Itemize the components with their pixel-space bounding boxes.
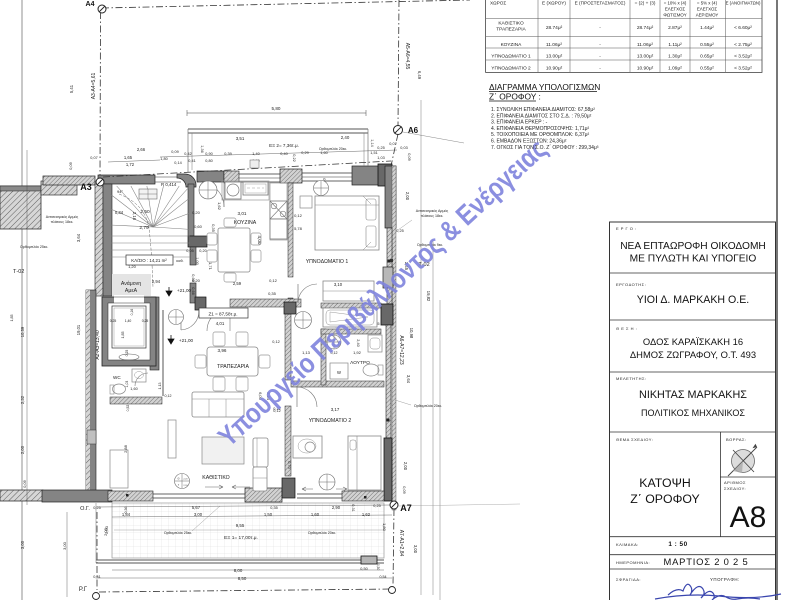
svg-text:Α6-Α7=12,23: Α6-Α7=12,23 (398, 335, 404, 365)
svg-text:0,34: 0,34 (115, 210, 124, 215)
svg-text:Ε Ρ Γ Ο :: Ε Ρ Γ Ο : (616, 226, 637, 231)
svg-text:0,35: 0,35 (270, 506, 277, 510)
svg-text:1,72: 1,72 (126, 162, 135, 167)
svg-text:11.06μ²: 11.06μ² (637, 42, 653, 48)
svg-text:10.90μ²: 10.90μ² (637, 65, 654, 71)
svg-text:1,03: 1,03 (377, 156, 384, 160)
svg-text:5,67: 5,67 (192, 505, 201, 510)
svg-text:ΥΙΟΙ Δ. ΜΑΡΚΑΚΗ Ο.Ε.: ΥΙΟΙ Δ. ΜΑΡΚΑΚΗ Ο.Ε. (637, 294, 749, 306)
svg-text:ΜΕΛΕΤΗΤΗΣ:: ΜΕΛΕΤΗΤΗΣ: (616, 376, 647, 381)
svg-text:Τ-02: Τ-02 (13, 269, 24, 275)
svg-text:2,79: 2,79 (139, 225, 149, 231)
svg-text:8,00: 8,00 (234, 568, 243, 573)
svg-text:0,14: 0,14 (174, 161, 181, 165)
svg-text:ΒΟΡΡΑΣ:: ΒΟΡΡΑΣ: (726, 437, 747, 442)
svg-text:19,82: 19,82 (426, 291, 431, 302)
svg-text:0.55μ²: 0.55μ² (700, 42, 714, 48)
svg-text:ΔΙΑΓΡΑΜΜΑ ΥΠΟΛΟΓΙΣΜΩΝ: ΔΙΑΓΡΑΜΜΑ ΥΠΟΛΟΓΙΣΜΩΝ (489, 82, 600, 92)
svg-text:0,25: 0,25 (142, 319, 149, 323)
svg-text:ΝΙΚΗΤΑΣ ΜΑΡΚΑΚΗΣ: ΝΙΚΗΤΑΣ ΜΑΡΚΑΚΗΣ (639, 389, 747, 401)
svg-text:1. ΣΥΝΟΛΙΚΗ ΕΠΙΦΑΝΕΙΑ ΔΙΑΜ/ΤΟΣ: 1. ΣΥΝΟΛΙΚΗ ΕΠΙΦΑΝΕΙΑ ΔΙΑΜ/ΤΟΣ: 67,58μ² (491, 107, 595, 113)
svg-text:ΤΡΑΠΕΖΑΡΙΑ: ΤΡΑΠΕΖΑΡΙΑ (496, 27, 526, 33)
svg-text:A8: A8 (730, 501, 767, 534)
svg-text:0,41: 0,41 (188, 159, 195, 163)
svg-text:1.11μ²: 1.11μ² (668, 42, 682, 48)
svg-text:2,32: 2,32 (20, 395, 25, 404)
svg-text:2,66: 2,66 (137, 147, 146, 152)
svg-text:7. ΟΓΚΟΣ ΓΙΑ ΤΟΝ Σ.Ο. Ζ΄ ΟΡΟΦΟ: 7. ΟΓΚΟΣ ΓΙΑ ΤΟΝ Σ.Ο. Ζ΄ ΟΡΟΦΟΥ : 299,34… (491, 145, 599, 151)
svg-text:3,00: 3,00 (413, 545, 418, 554)
svg-text:1,80: 1,80 (160, 157, 167, 161)
svg-text:ΕΡΓΟΔΟΤΗΣ:: ΕΡΓΟΔΟΤΗΣ: (616, 282, 646, 287)
svg-text:0,09: 0,09 (69, 162, 73, 169)
svg-text:0,22: 0,22 (292, 154, 296, 161)
svg-text:1.09μ²: 1.09μ² (668, 65, 682, 71)
svg-text:0,07: 0,07 (389, 142, 396, 146)
svg-text:0,40: 0,40 (280, 152, 287, 156)
svg-text:2,50: 2,50 (140, 209, 150, 215)
svg-text:6,49: 6,49 (417, 71, 422, 80)
svg-text:2,90: 2,90 (332, 505, 341, 510)
svg-text:0,35: 0,35 (211, 224, 216, 233)
svg-text:10.90μ²: 10.90μ² (546, 65, 563, 71)
svg-text:1,85: 1,85 (121, 332, 125, 339)
svg-text:0,54: 0,54 (380, 575, 387, 579)
svg-text:0,51: 0,51 (93, 575, 100, 579)
svg-text:0,25: 0,25 (377, 146, 384, 150)
svg-text:1,36: 1,36 (200, 145, 204, 152)
svg-text:2,88: 2,88 (123, 444, 128, 453)
svg-text:0.55μ²: 0.55μ² (700, 65, 714, 71)
svg-text:0,12: 0,12 (269, 278, 278, 283)
svg-text:ΑμεΑ: ΑμεΑ (125, 288, 138, 294)
svg-text:5. ΤΟΙΧΟΠΟΙΕΙΑ ΜΕ ΟΡΘΟΜΠΛΟΚ:: 5. ΤΟΙΧΟΠΟΙΕΙΑ ΜΕ ΟΡΘΟΜΠΛΟΚ: 6,37μ² (491, 132, 590, 138)
svg-text:= (2) + (3): = (2) + (3) (635, 1, 656, 6)
svg-text:0,25: 0,25 (373, 504, 380, 508)
svg-text:1,40: 1,40 (252, 152, 259, 156)
svg-text:ΥΠΝΟΔΩΜΑΤΙΟ 2: ΥΠΝΟΔΩΜΑΤΙΟ 2 (309, 418, 352, 424)
svg-text:2,00: 2,00 (104, 525, 109, 534)
svg-text:Α5-Α6=4,55: Α5-Α6=4,55 (404, 43, 410, 70)
svg-text:3,10: 3,10 (334, 282, 343, 287)
svg-text:5,80: 5,80 (272, 106, 281, 111)
svg-text:1,00: 1,00 (195, 257, 199, 264)
svg-text:1,84: 1,84 (122, 512, 131, 517)
svg-text:+21,00: +21,00 (179, 338, 194, 343)
svg-text:2,94: 2,94 (152, 279, 161, 284)
svg-text:= 5% x (4): = 5% x (4) (697, 1, 718, 6)
svg-text:< 3.52μ²: < 3.52μ² (734, 65, 752, 71)
svg-text:ΗΜΕΡΟΜΗΝΙΑ:: ΗΜΕΡΟΜΗΝΙΑ: (616, 560, 650, 565)
svg-text:0,35: 0,35 (268, 291, 277, 296)
svg-text:ΥΠΝΟΔΩΜΑΤΙΟ 1: ΥΠΝΟΔΩΜΑΤΙΟ 1 (306, 259, 349, 265)
svg-text:< 6.60μ²: < 6.60μ² (734, 25, 752, 31)
svg-text:Ορθομπλόκ 25εκ.: Ορθομπλόκ 25εκ. (164, 531, 192, 535)
svg-text:ΝΕΑ ΕΠΤΑΩΡΟΦΗ ΟΙΚΟΔΟΜΗ: ΝΕΑ ΕΠΤΑΩΡΟΦΗ ΟΙΚΟΔΟΜΗ (620, 241, 766, 252)
svg-text:1,92: 1,92 (353, 350, 362, 355)
svg-text:3,01: 3,01 (238, 211, 247, 216)
svg-text:1 : 50: 1 : 50 (668, 541, 687, 548)
svg-text:ΥΠΝΟΔΩΜΑΤΙΟ 1: ΥΠΝΟΔΩΜΑΤΙΟ 1 (491, 53, 531, 59)
svg-text:< 3.52μ²: < 3.52μ² (734, 53, 752, 59)
svg-text:28.74μ²: 28.74μ² (546, 25, 563, 31)
svg-text:0,80: 0,80 (205, 159, 212, 163)
svg-text:A4: A4 (86, 1, 95, 8)
svg-text:1,60: 1,60 (130, 387, 137, 391)
svg-text:0,90: 0,90 (205, 152, 212, 156)
svg-text:ΚΛΙΜΑΚΑ:: ΚΛΙΜΑΚΑ: (616, 542, 639, 547)
svg-text:0,20: 0,20 (199, 249, 206, 253)
svg-text:0,07: 0,07 (90, 156, 97, 160)
svg-text:ΤΡΑΠΕΖΑΡΙΑ: ΤΡΑΠΕΖΑΡΙΑ (217, 364, 249, 370)
svg-text:Ε (ΧΩΡΟΥ): Ε (ΧΩΡΟΥ) (542, 1, 566, 6)
svg-text:0,30: 0,30 (376, 564, 380, 571)
svg-text:ΠΟΛΙΤΙΚΟΣ ΜΗΧΑΝΙΚΟΣ: ΠΟΛΙΤΙΚΟΣ ΜΗΧΑΝΙΚΟΣ (641, 408, 745, 418)
svg-text:1,71: 1,71 (208, 262, 213, 271)
svg-text:Ζ΄ ΟΡΟΦΟΥ: Ζ΄ ΟΡΟΦΟΥ (630, 492, 700, 506)
svg-text:ΜΕ ΠΥΛΩΤΗ ΚΑΙ ΥΠΟΓΕΙΟ: ΜΕ ΠΥΛΩΤΗ ΚΑΙ ΥΠΟΓΕΙΟ (630, 254, 757, 265)
svg-text:πλάτους 18εκ.: πλάτους 18εκ. (51, 220, 74, 224)
svg-text:0,03: 0,03 (400, 146, 407, 150)
svg-text:2,40: 2,40 (341, 135, 350, 140)
svg-text:13.00μ²: 13.00μ² (637, 53, 654, 59)
svg-text:2,40: 2,40 (356, 339, 360, 346)
svg-text:3. ΕΠΙΦΑΝΕΙΑ ΕΡΚΕΡ : -: 3. ΕΠΙΦΑΝΕΙΑ ΕΡΚΕΡ : - (491, 120, 548, 126)
svg-text:1,60: 1,60 (311, 512, 320, 517)
svg-text:1,62: 1,62 (362, 512, 371, 517)
svg-text:10,59: 10,59 (20, 326, 25, 337)
svg-text:Ορθομπλόκ 20εκ.: Ορθομπλόκ 20εκ. (308, 531, 336, 535)
svg-text:ΑΕΡΙΣΜΟΥ: ΑΕΡΙΣΜΟΥ (696, 13, 719, 18)
svg-text:1,80: 1,80 (382, 523, 387, 532)
svg-text:5,78: 5,78 (294, 226, 303, 231)
svg-text:0,12: 0,12 (294, 213, 303, 218)
svg-text:0,25: 0,25 (396, 229, 403, 233)
svg-text:0,05: 0,05 (186, 249, 193, 253)
svg-text:10,98: 10,98 (409, 328, 414, 339)
svg-text:ΑΡΙΘΜΟΣ: ΑΡΙΘΜΟΣ (724, 480, 746, 485)
svg-text:0,52: 0,52 (126, 405, 130, 412)
svg-text:Ο.Γ.: Ο.Γ. (80, 506, 90, 512)
svg-text:Αντισεισμικός Αρμός: Αντισεισμικός Αρμός (416, 209, 449, 213)
svg-text:94°: 94° (117, 189, 123, 194)
svg-text:W: W (337, 370, 341, 375)
svg-text:1,65: 1,65 (124, 155, 133, 160)
svg-text:0,31: 0,31 (351, 504, 355, 511)
svg-text:3,17: 3,17 (331, 407, 340, 412)
svg-text:ΣΦΡΑΓΙΔΑ:: ΣΦΡΑΓΙΔΑ: (616, 577, 641, 582)
svg-text:0,66: 0,66 (191, 287, 195, 294)
svg-text:1,60: 1,60 (320, 151, 327, 155)
svg-text:A7: A7 (400, 503, 412, 513)
svg-text:1,13: 1,13 (158, 383, 162, 390)
svg-text:2,16: 2,16 (132, 212, 137, 221)
svg-text:< 2.75μ²: < 2.75μ² (734, 42, 752, 48)
svg-text:1,03: 1,03 (125, 381, 129, 388)
svg-text:0,09: 0,09 (23, 480, 27, 487)
svg-text:2. ΕΠΙΦΑΝΕΙΑ ΔΙΑΜ/ΤΟΣ ΣΤΟ Σ.Δ.: 2. ΕΠΙΦΑΝΕΙΑ ΔΙΑΜ/ΤΟΣ ΣΤΟ Σ.Δ. : 79,50μ² (491, 113, 592, 119)
svg-text:A6: A6 (408, 126, 419, 135)
svg-text:1,85: 1,85 (10, 315, 14, 322)
svg-text:ΚΑΘΙΣΤΙΚΟ: ΚΑΘΙΣΤΙΚΟ (202, 475, 229, 481)
svg-text:+21,00: +21,00 (177, 288, 192, 293)
svg-text:ΚΑΘΙΣΤΙΚΟ: ΚΑΘΙΣΤΙΚΟ (498, 21, 524, 27)
svg-text:0,39: 0,39 (224, 152, 231, 156)
svg-text:ΔΗΜΟΣ ΖΩΓΡΑΦΟΥ, Ο.Τ. 493: ΔΗΜΟΣ ΖΩΓΡΑΦΟΥ, Ο.Τ. 493 (630, 349, 756, 360)
svg-text:0,20: 0,20 (192, 210, 201, 215)
svg-text:ΕΛΕΓΧΟΣ: ΕΛΕΓΧΟΣ (697, 7, 718, 12)
svg-text:Z1 = 87,58τ.μ.: Z1 = 87,58τ.μ. (208, 312, 237, 317)
svg-text:2,59: 2,59 (233, 281, 242, 286)
svg-text:3,64: 3,64 (406, 375, 411, 384)
svg-text:ΕΛΕΓΧΟΣ: ΕΛΕΓΧΟΣ (665, 7, 686, 12)
svg-text:0,66: 0,66 (191, 274, 195, 281)
svg-text:ΧΩΡΟΣ: ΧΩΡΟΣ (490, 1, 506, 6)
svg-text:0,09: 0,09 (402, 486, 406, 493)
svg-text:1,50: 1,50 (264, 512, 273, 517)
svg-text:1,14: 1,14 (370, 139, 374, 146)
svg-text:2.87μ²: 2.87μ² (668, 25, 682, 31)
svg-text:1,20: 1,20 (128, 264, 137, 269)
svg-text:ΚΟΥΖΙΝΑ: ΚΟΥΖΙΝΑ (501, 42, 523, 48)
svg-text:5,41: 5,41 (69, 84, 74, 93)
svg-text:ΚΑΤΟΨΗ: ΚΑΤΟΨΗ (639, 476, 691, 490)
svg-text:0,50: 0,50 (360, 567, 367, 571)
svg-text:A3: A3 (80, 182, 92, 192)
svg-text:19,01: 19,01 (76, 324, 81, 335)
svg-text:ΟΔΟΣ ΚΑΡΑΪΣΚΑΚΗ 16: ΟΔΟΣ ΚΑΡΑΪΣΚΑΚΗ 16 (643, 336, 743, 347)
svg-text:3,51: 3,51 (236, 136, 245, 141)
svg-text:ΣΧΕΔΙΟΥ:: ΣΧΕΔΙΟΥ: (724, 486, 746, 491)
svg-text:0,09: 0,09 (407, 153, 411, 160)
svg-text:ΥΠΝΟΔΩΜΑΤΙΟ 2: ΥΠΝΟΔΩΜΑΤΙΟ 2 (491, 65, 531, 71)
svg-text:3,00: 3,00 (194, 512, 203, 517)
svg-text:ΜΑΡΤΙΟΣ 2 0 2 5: ΜΑΡΤΙΟΣ 2 0 2 5 (663, 556, 748, 567)
svg-text:1.30μ²: 1.30μ² (668, 53, 682, 59)
svg-text:11.06μ²: 11.06μ² (546, 42, 562, 48)
svg-text:2,00: 2,00 (403, 462, 408, 471)
svg-text:καθ.: καθ. (176, 259, 183, 263)
svg-text:4,01: 4,01 (216, 321, 225, 326)
svg-text:0,70: 0,70 (287, 461, 292, 470)
svg-text:0,12: 0,12 (272, 340, 279, 344)
svg-text:Ορθομπλόκ 25εκ.: Ορθομπλόκ 25εκ. (20, 245, 48, 249)
svg-text:ΕΞ 1= 17,00τ.μ.: ΕΞ 1= 17,00τ.μ. (224, 535, 258, 541)
svg-text:0,12: 0,12 (165, 394, 172, 398)
svg-text:0,09: 0,09 (171, 150, 178, 154)
svg-text:ΚΛ/ΣΙΟ : 14,21 m²: ΚΛ/ΣΙΟ : 14,21 m² (131, 258, 167, 263)
svg-text:ΘΕΜΑ ΣΧΕΔΙΟΥ:: ΘΕΜΑ ΣΧΕΔΙΟΥ: (616, 437, 653, 442)
svg-text:2,00: 2,00 (20, 445, 25, 454)
svg-text:ΦΩΤΙΣΜΟΥ: ΦΩΤΙΣΜΟΥ (663, 13, 686, 18)
svg-text:0,42: 0,42 (184, 152, 191, 156)
svg-text:WC: WC (113, 375, 121, 380)
svg-text:0,25: 0,25 (93, 506, 100, 510)
svg-text:Ε (ΑΝΟΙΓΜΑΤΩΝ): Ε (ΑΝΟΙΓΜΑΤΩΝ) (726, 1, 761, 6)
svg-text:3,64: 3,64 (76, 233, 81, 242)
svg-text:= 10% x (4): = 10% x (4) (664, 1, 687, 6)
svg-text:8,50: 8,50 (238, 576, 247, 581)
svg-text:Ανάμονη: Ανάμονη (121, 280, 141, 287)
svg-text:4. ΕΠΙΦΑΝΕΙΑ ΘΕΡΜΟΠΡΟΣΟΨΗΣ: 1: 4. ΕΠΙΦΑΝΕΙΑ ΘΕΡΜΟΠΡΟΣΟΨΗΣ: 1,71μ² (491, 126, 590, 132)
svg-text:Ζ΄ ΟΡΟΦΟΥ :: Ζ΄ ΟΡΟΦΟΥ : (489, 92, 541, 102)
svg-text:Ρ.Γ: Ρ.Γ (79, 587, 88, 593)
svg-text:1.44μ²: 1.44μ² (700, 25, 714, 31)
svg-text:0,60: 0,60 (194, 224, 203, 229)
svg-text:0,25: 0,25 (110, 319, 117, 323)
svg-text:Α7-Α1=2,84: Α7-Α1=2,84 (398, 530, 404, 557)
svg-text:0,16: 0,16 (130, 309, 134, 316)
svg-text:0,25: 0,25 (125, 350, 129, 357)
svg-text:Ε (ΠΡΟΣΤΕΓΑΣΜΑΤΟΣ): Ε (ΠΡΟΣΤΕΓΑΣΜΑΤΟΣ) (575, 1, 626, 6)
svg-text:ΕΞ 2= 7,36τ.μ.: ΕΞ 2= 7,36τ.μ. (269, 143, 299, 148)
svg-text:1,40: 1,40 (125, 319, 132, 323)
svg-text:Ορθομπλόκ 20εκ.: Ορθομπλόκ 20εκ. (414, 404, 442, 408)
svg-text:2,00: 2,00 (405, 192, 410, 201)
svg-text:ΚΟΥΖΙΝΑ: ΚΟΥΖΙΝΑ (234, 220, 257, 226)
svg-text:0,29: 0,29 (301, 151, 308, 155)
svg-text:3,96: 3,96 (218, 348, 227, 353)
svg-text:3,00: 3,00 (20, 540, 25, 549)
svg-text:Θ: Θ (177, 477, 179, 481)
svg-text:28.74μ²: 28.74μ² (637, 25, 654, 31)
svg-text:0.65μ²: 0.65μ² (700, 53, 714, 59)
svg-text:ΥΠΟΓΡΑΦΗ:: ΥΠΟΓΡΑΦΗ: (710, 577, 740, 582)
svg-text:Α3-Α4=5,61: Α3-Α4=5,61 (91, 73, 97, 100)
svg-text:1,51: 1,51 (370, 151, 377, 155)
svg-text:Θ Ε Σ Η :: Θ Ε Σ Η : (616, 326, 637, 331)
svg-text:13.00μ²: 13.00μ² (546, 53, 563, 59)
svg-text:Αντισεισμικός Αρμός: Αντισεισμικός Αρμός (46, 215, 79, 219)
svg-text:6. ΕΜΒΑΔΟΝ ΕΞΩΣΤΩΝ: 24,36μ²: 6. ΕΜΒΑΔΟΝ ΕΞΩΣΤΩΝ: 24,36μ² (491, 139, 567, 145)
svg-text:3,00: 3,00 (62, 541, 67, 550)
svg-text:9,55: 9,55 (236, 523, 245, 528)
svg-text:1,62: 1,62 (217, 202, 222, 211)
